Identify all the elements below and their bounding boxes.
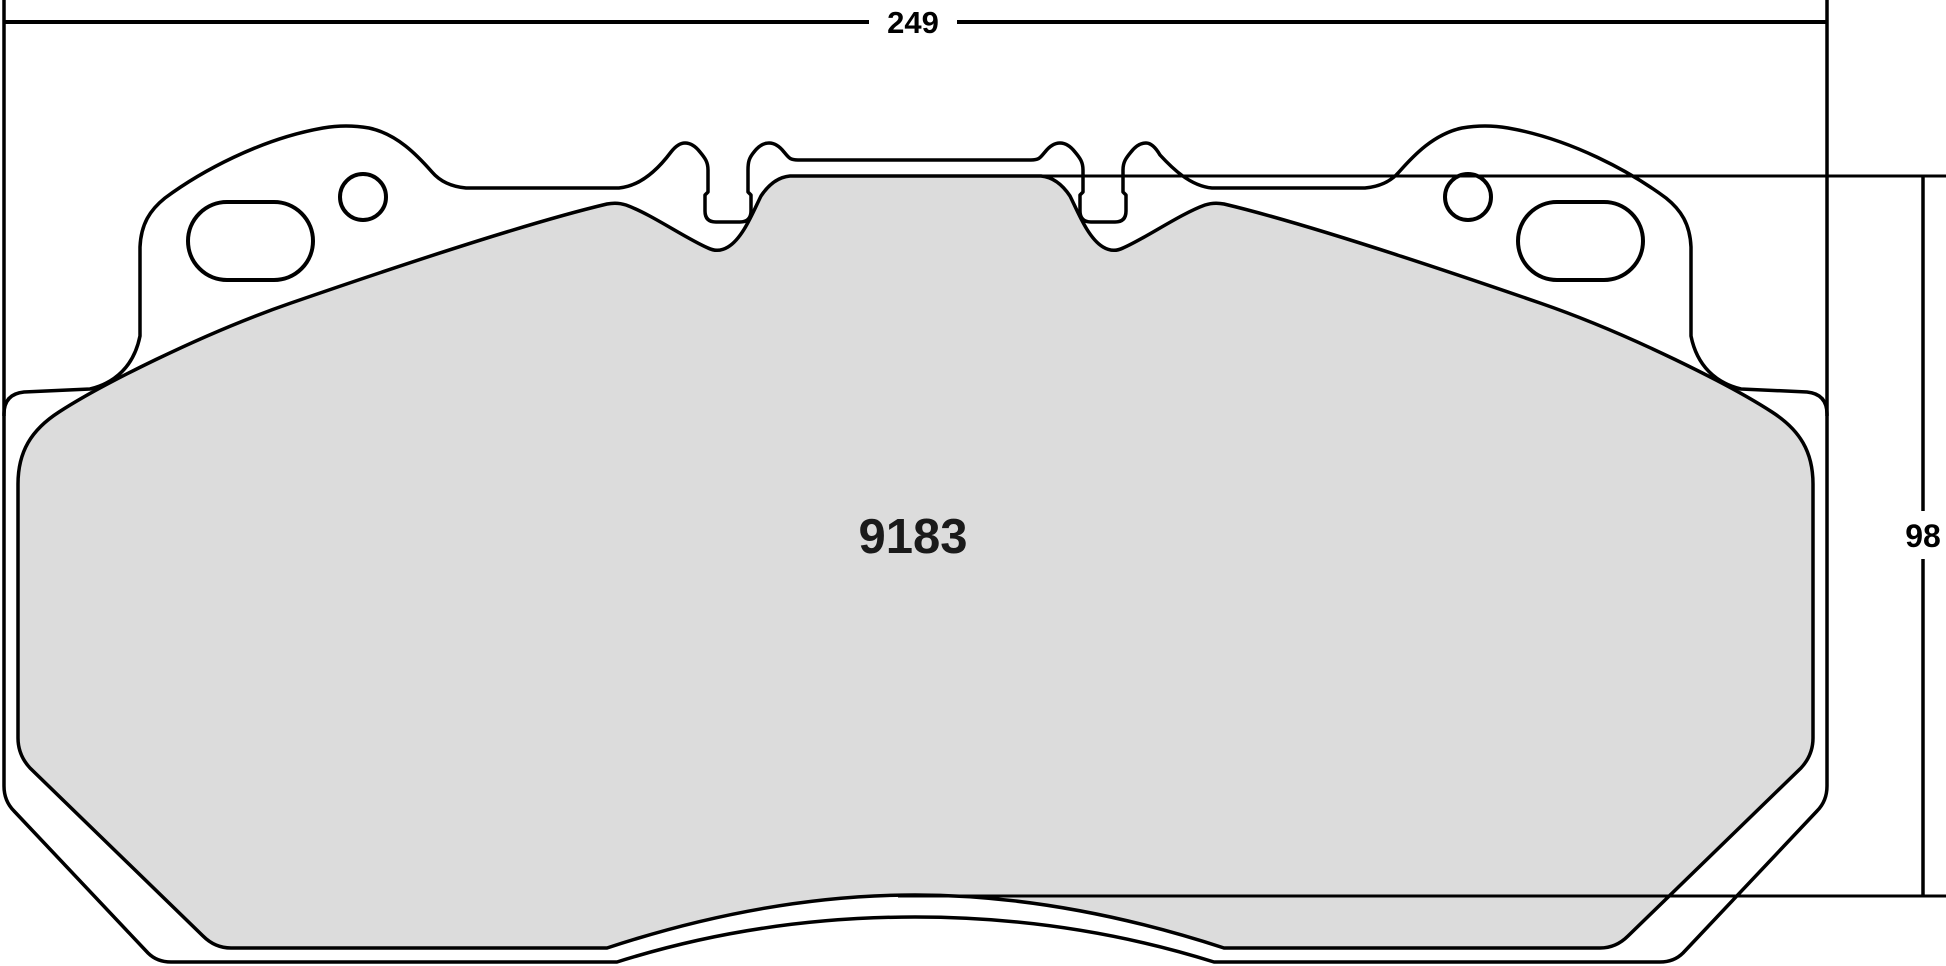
width-dimension-label: 249 (887, 5, 939, 40)
height-dimension-label: 98 (1905, 518, 1941, 554)
hole-slot-left (188, 202, 313, 280)
hole-round-right (1445, 174, 1491, 220)
hole-slot-right (1518, 202, 1643, 280)
part-number-label: 9183 (858, 510, 967, 564)
brake-pad-drawing: 249 98 9183 (0, 0, 1946, 966)
hole-round-left (340, 174, 386, 220)
drawing-canvas: 249 98 9183 (0, 0, 1946, 966)
